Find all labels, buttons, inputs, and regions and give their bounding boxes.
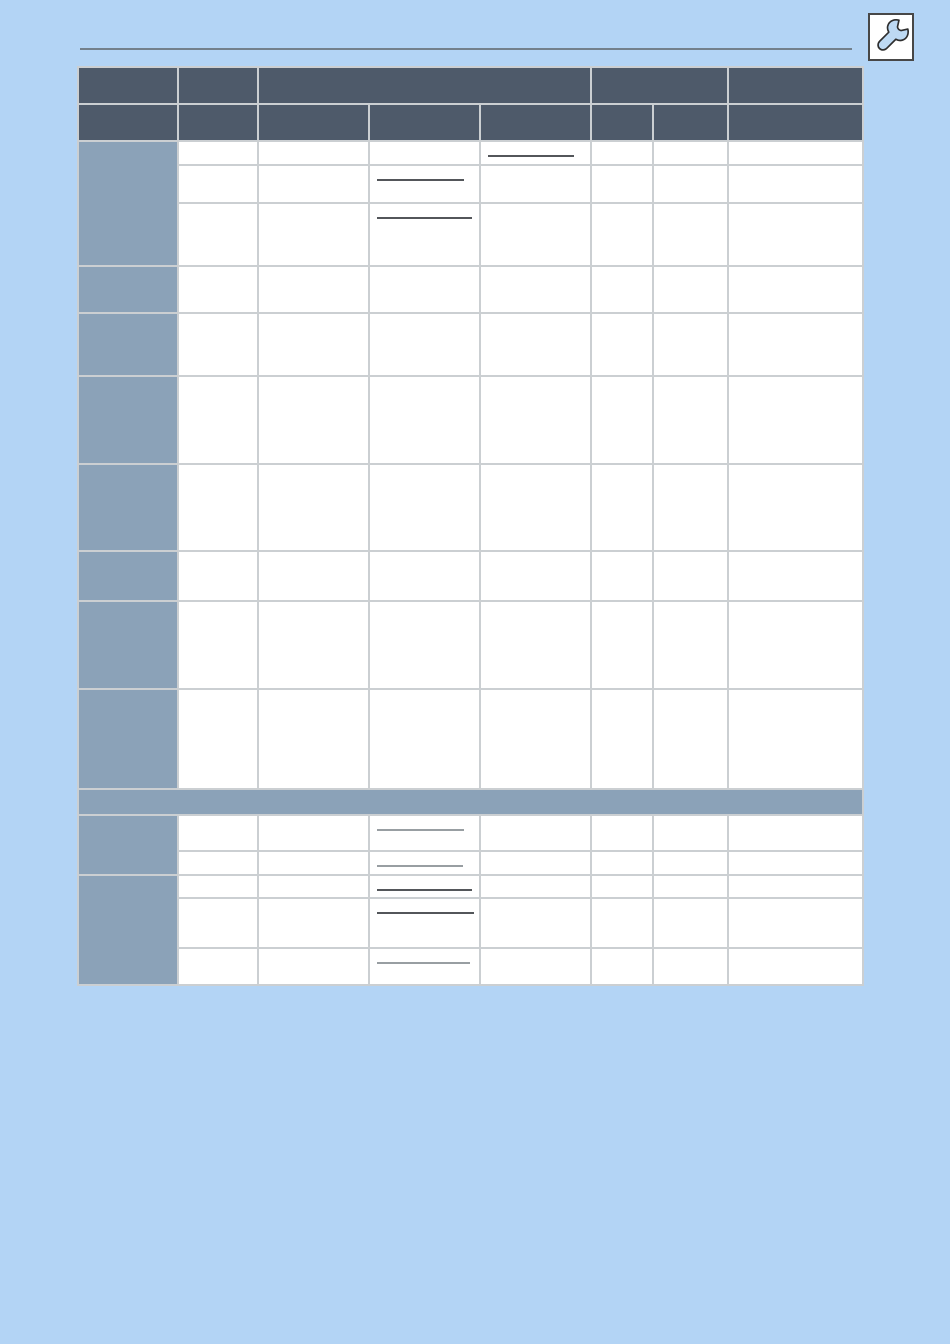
table-cell — [728, 376, 863, 464]
table-cell — [653, 898, 728, 948]
table-cell — [591, 464, 653, 551]
table-cell — [178, 141, 258, 165]
column-header-cell — [653, 104, 728, 141]
column-header-cell — [369, 104, 480, 141]
table-cell — [369, 898, 480, 948]
table-cell — [369, 266, 480, 313]
table-cell — [480, 851, 591, 875]
table-row — [78, 376, 863, 464]
table-cell — [258, 601, 369, 689]
table-cell — [258, 464, 369, 551]
column-header-cell — [591, 67, 728, 104]
table-header — [78, 67, 863, 141]
table-cell — [653, 601, 728, 689]
table-cell — [178, 851, 258, 875]
table-cell — [369, 948, 480, 985]
table-cell — [591, 898, 653, 948]
table-cell — [369, 165, 480, 203]
table-cell — [591, 165, 653, 203]
table-cell — [258, 898, 369, 948]
table-row — [78, 551, 863, 601]
table-cell — [728, 165, 863, 203]
table-cell — [480, 898, 591, 948]
table-cell — [369, 313, 480, 376]
table-cell — [480, 551, 591, 601]
table-cell — [178, 948, 258, 985]
table-cell — [591, 203, 653, 266]
table-row — [78, 165, 863, 203]
table-cell — [369, 551, 480, 601]
row-header-cell — [78, 601, 178, 689]
wrench-button[interactable] — [868, 13, 914, 61]
table-cell — [728, 689, 863, 789]
table-cell — [653, 141, 728, 165]
table-row — [78, 815, 863, 851]
wrench-icon — [871, 16, 911, 58]
table-cell — [258, 815, 369, 851]
table-cell — [369, 875, 480, 898]
table-row — [78, 601, 863, 689]
table-cell — [258, 376, 369, 464]
table-cell — [480, 266, 591, 313]
column-header-cell — [728, 67, 863, 104]
table-cell — [728, 203, 863, 266]
column-header-cell — [258, 67, 591, 104]
table-row — [78, 851, 863, 875]
table-cell — [591, 266, 653, 313]
table-cell — [178, 266, 258, 313]
row-header-cell — [78, 689, 178, 789]
table-cell — [178, 815, 258, 851]
table-cell — [591, 551, 653, 601]
table-cell — [258, 266, 369, 313]
table-cell — [480, 875, 591, 898]
table-cell — [728, 313, 863, 376]
table-cell — [178, 165, 258, 203]
header-rule — [80, 48, 852, 50]
table-cell — [728, 851, 863, 875]
table-cell — [369, 376, 480, 464]
table-cell — [728, 266, 863, 313]
table-cell — [591, 851, 653, 875]
document-page: { "page": { "background_color": "#b3d4f5… — [0, 0, 950, 1344]
table-row — [78, 203, 863, 266]
table-cell — [178, 313, 258, 376]
table-cell — [369, 601, 480, 689]
table-cell — [728, 898, 863, 948]
table-cell — [591, 875, 653, 898]
table-row — [78, 948, 863, 985]
table-cell — [480, 203, 591, 266]
blank-underline — [377, 217, 472, 219]
table-cell — [653, 376, 728, 464]
table-cell — [653, 313, 728, 376]
table-cell — [728, 815, 863, 851]
table-cell — [653, 203, 728, 266]
table-cell — [653, 165, 728, 203]
table-cell — [369, 464, 480, 551]
table-cell — [258, 165, 369, 203]
table-row — [78, 266, 863, 313]
blank-underline — [377, 865, 463, 867]
table-cell — [480, 313, 591, 376]
table-cell — [591, 948, 653, 985]
table-cell — [369, 815, 480, 851]
column-header-cell — [480, 104, 591, 141]
column-header-cell — [178, 104, 258, 141]
table-cell — [653, 464, 728, 551]
table-cell — [178, 376, 258, 464]
table-cell — [591, 689, 653, 789]
table-row — [78, 689, 863, 789]
table-cell — [178, 689, 258, 789]
blank-underline — [377, 962, 470, 964]
row-header-cell — [78, 815, 178, 875]
table-cell — [178, 875, 258, 898]
table-cell — [728, 875, 863, 898]
table-cell — [480, 376, 591, 464]
column-header-cell — [178, 67, 258, 104]
row-header-cell — [78, 464, 178, 551]
blank-underline — [377, 179, 464, 181]
table-cell — [480, 165, 591, 203]
table-cell — [258, 141, 369, 165]
table-cell — [591, 815, 653, 851]
blank-underline — [377, 889, 472, 891]
column-header-cell — [78, 104, 178, 141]
blank-underline — [377, 912, 474, 914]
blank-underline — [488, 155, 574, 157]
table-cell — [480, 141, 591, 165]
table-cell — [591, 141, 653, 165]
column-header-cell — [78, 67, 178, 104]
table-cell — [591, 376, 653, 464]
table-cell — [480, 689, 591, 789]
table-cell — [653, 948, 728, 985]
table-cell — [369, 141, 480, 165]
table-cell — [369, 851, 480, 875]
blank-underline — [377, 829, 464, 831]
table-body — [78, 141, 863, 985]
row-header-cell — [78, 875, 178, 985]
table-cell — [258, 875, 369, 898]
table-row — [78, 141, 863, 165]
row-header-cell — [78, 376, 178, 464]
table-row — [78, 898, 863, 948]
table-cell — [369, 203, 480, 266]
table-cell — [728, 948, 863, 985]
column-header-cell — [591, 104, 653, 141]
table-cell — [653, 815, 728, 851]
table-cell — [480, 815, 591, 851]
data-table — [77, 66, 864, 986]
table-cell — [653, 551, 728, 601]
table-cell — [258, 851, 369, 875]
table-cell — [369, 689, 480, 789]
row-header-cell — [78, 313, 178, 376]
column-header-cell — [258, 104, 369, 141]
table-cell — [591, 313, 653, 376]
table-cell — [728, 141, 863, 165]
table-cell — [178, 601, 258, 689]
table-cell — [480, 601, 591, 689]
table-cell — [480, 464, 591, 551]
row-header-cell — [78, 551, 178, 601]
table-cell — [258, 551, 369, 601]
table-cell — [178, 551, 258, 601]
section-separator — [78, 789, 863, 815]
table-cell — [258, 313, 369, 376]
table-cell — [728, 601, 863, 689]
table-row — [78, 464, 863, 551]
column-header-cell — [728, 104, 863, 141]
table-row — [78, 313, 863, 376]
row-header-cell — [78, 141, 178, 266]
table-cell — [653, 266, 728, 313]
table-cell — [258, 948, 369, 985]
table-cell — [178, 203, 258, 266]
table-cell — [653, 875, 728, 898]
row-header-cell — [78, 266, 178, 313]
table-row — [78, 875, 863, 898]
table-cell — [258, 203, 369, 266]
table-cell — [178, 464, 258, 551]
table-cell — [178, 898, 258, 948]
table-cell — [258, 689, 369, 789]
table-cell — [653, 851, 728, 875]
table-cell — [728, 551, 863, 601]
table-cell — [728, 464, 863, 551]
table-cell — [653, 689, 728, 789]
table-cell — [591, 601, 653, 689]
table-cell — [480, 948, 591, 985]
